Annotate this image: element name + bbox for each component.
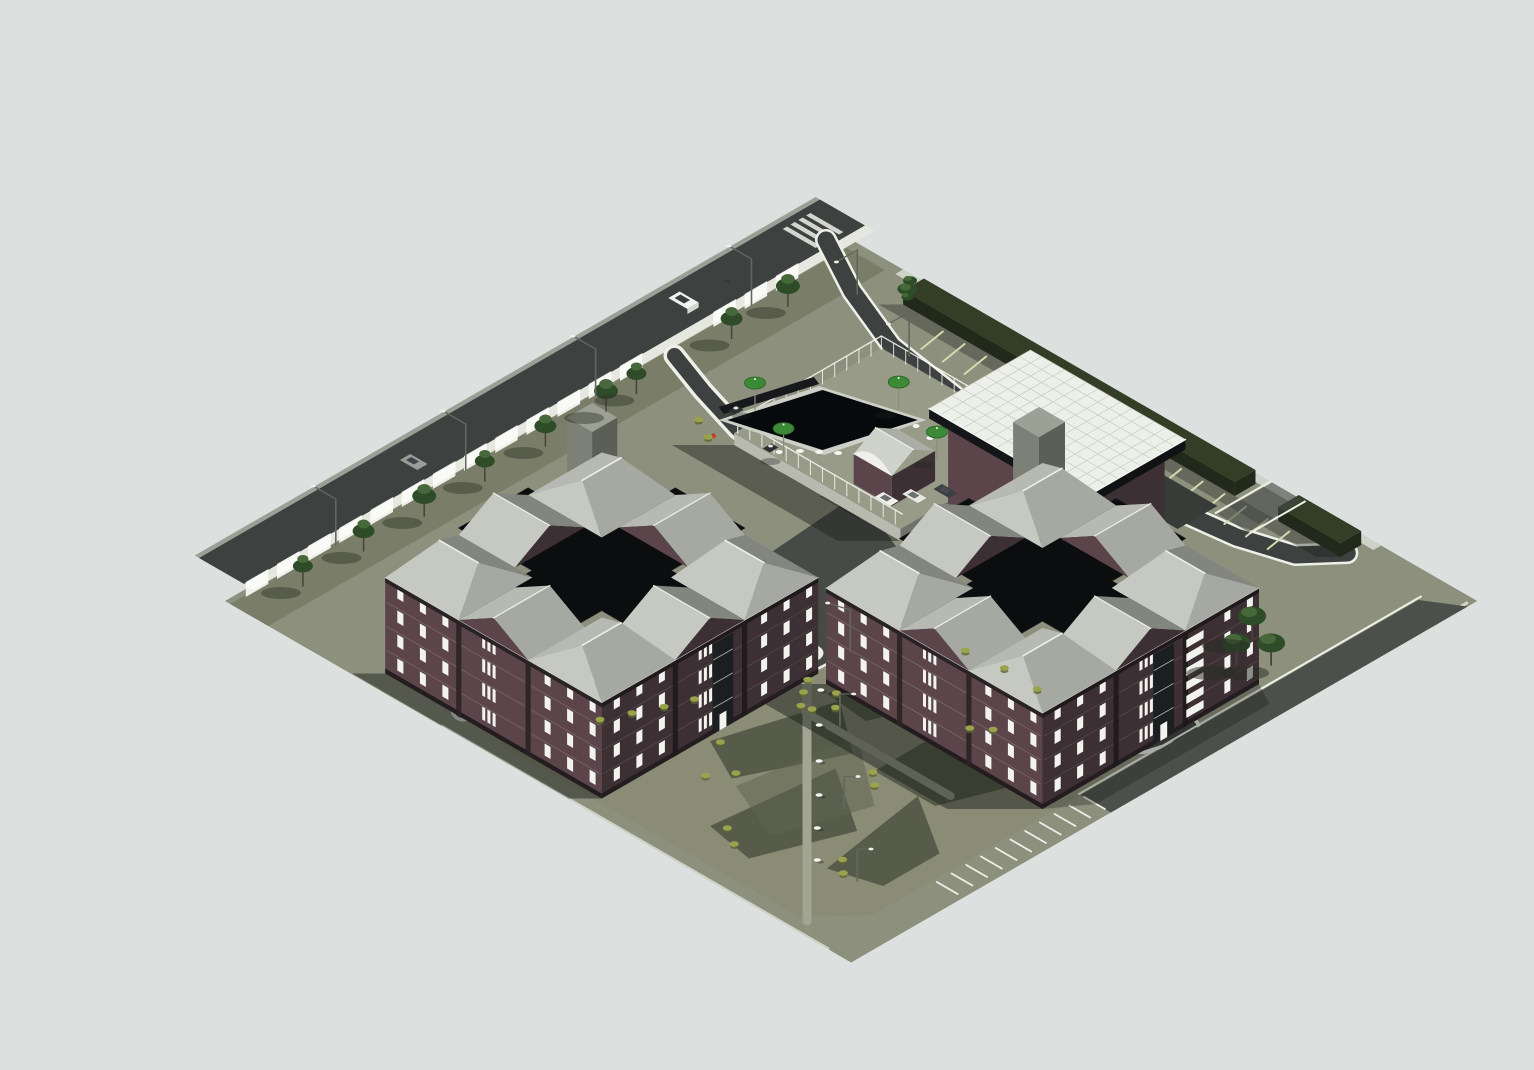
shrub	[831, 705, 840, 711]
window-slit	[493, 713, 496, 728]
tree-shadow	[382, 517, 422, 529]
shrub	[965, 725, 974, 731]
site-plan-canvas	[40, 16, 1534, 1054]
window-slit	[1145, 725, 1148, 740]
window-slit	[704, 715, 707, 730]
shrub	[796, 703, 805, 709]
window-slit	[1150, 674, 1153, 689]
window-slit	[923, 669, 926, 684]
shrub	[731, 770, 740, 776]
shrub	[690, 696, 699, 702]
lamp-head	[727, 245, 732, 248]
window-slit	[933, 723, 936, 738]
shrub	[1033, 686, 1042, 692]
shrub	[716, 739, 725, 745]
lamp-head	[571, 335, 576, 338]
window-slit	[923, 693, 926, 708]
umbrella-finial	[898, 377, 900, 379]
pool-grill-lid	[768, 445, 773, 448]
window-slit	[487, 686, 490, 701]
window-slit	[933, 699, 936, 714]
window-slit	[704, 691, 707, 706]
tree-shadow	[322, 552, 362, 564]
lamp-head	[856, 775, 861, 778]
tree-shadow	[1202, 639, 1250, 653]
hedge-shrub-light	[902, 293, 909, 297]
window-slit	[487, 662, 490, 677]
window-slit	[1140, 680, 1143, 695]
window-slit	[933, 675, 936, 690]
tree-shadow	[690, 340, 730, 352]
lamp-head	[834, 261, 839, 264]
pool-table	[913, 424, 920, 428]
window-slit	[482, 683, 485, 698]
architectural-site-render	[40, 16, 1534, 1054]
window-slit	[493, 689, 496, 704]
shrub	[838, 857, 847, 863]
window-slit	[1140, 728, 1143, 743]
window-slit	[1150, 698, 1153, 713]
tree-shadow	[1221, 666, 1269, 680]
shrub	[704, 434, 713, 440]
pool-lounger	[815, 450, 823, 454]
recess-notch	[456, 623, 461, 718]
tree-shadow	[503, 447, 543, 459]
tree-shadow	[443, 482, 483, 494]
tree-shadow	[564, 412, 604, 424]
tree-canopy-light	[631, 362, 642, 370]
bench	[816, 793, 823, 797]
tree-shadow	[746, 307, 786, 319]
recess-notch	[673, 663, 678, 758]
umbrella-finial	[754, 378, 756, 380]
recess-notch	[742, 623, 747, 718]
tree-canopy-light	[1260, 634, 1276, 644]
shrub	[660, 704, 669, 710]
window-slit	[482, 707, 485, 722]
lamp-head	[825, 602, 830, 605]
window-slit	[709, 664, 712, 679]
umbrella-shadow	[732, 413, 752, 420]
tree-shadow	[261, 587, 301, 599]
tree-canopy-light	[539, 415, 551, 424]
shrub	[808, 706, 817, 712]
lamp-head	[886, 323, 891, 326]
shrub	[628, 710, 637, 716]
tree-canopy-light	[725, 307, 737, 316]
window-slit	[493, 665, 496, 680]
shrub	[596, 717, 605, 723]
window-slit	[1150, 722, 1153, 737]
shrub	[961, 648, 970, 654]
hedge-shrub-light	[904, 276, 912, 281]
shrub	[989, 727, 998, 733]
umbrella-shadow	[914, 462, 934, 469]
shrub	[694, 417, 703, 423]
window-slit	[709, 688, 712, 703]
shrub	[701, 773, 710, 779]
tree-canopy-light	[357, 520, 369, 529]
shrub	[868, 769, 877, 775]
window-slit	[1145, 677, 1148, 692]
pool-grill-lid	[733, 407, 738, 410]
lamp-head	[441, 410, 446, 413]
shrub	[803, 677, 812, 683]
tree-canopy-light	[781, 274, 795, 284]
window-slit	[1140, 704, 1143, 719]
umbrella-finial	[783, 424, 785, 426]
recess-notch	[897, 633, 902, 728]
tree-shadow	[594, 395, 634, 407]
shrub	[870, 782, 879, 788]
bench	[814, 858, 821, 862]
recess-notch	[966, 673, 971, 768]
pool-lounger	[834, 451, 842, 455]
window-slit	[709, 712, 712, 727]
tree-canopy-light	[599, 379, 613, 389]
tree-canopy-light	[297, 555, 308, 563]
recess-notch	[1114, 673, 1119, 768]
shrub	[799, 689, 808, 695]
window-slit	[1145, 701, 1148, 716]
shrub	[839, 870, 848, 876]
umbrella-finial	[936, 427, 938, 429]
window-slit	[699, 670, 702, 685]
window-slit	[923, 717, 926, 732]
tree-canopy-light	[479, 450, 490, 458]
shrub	[1000, 665, 1009, 671]
window-slit	[699, 694, 702, 709]
tree-canopy-light	[417, 484, 431, 494]
bench	[816, 759, 823, 763]
pool-lounger	[796, 449, 804, 453]
manhole	[724, 280, 730, 283]
window-slit	[704, 667, 707, 682]
umbrella-shadow	[876, 412, 896, 419]
window-slit	[482, 659, 485, 674]
recess-notch	[526, 663, 531, 758]
shrub	[723, 825, 732, 831]
lamp-head	[851, 693, 856, 696]
pool-table	[776, 450, 783, 454]
window-slit	[487, 710, 490, 725]
window-slit	[928, 672, 931, 687]
bench	[816, 723, 823, 727]
window-slit	[928, 720, 931, 735]
window-slit	[928, 696, 931, 711]
shrub	[730, 841, 739, 847]
lamp-head	[311, 485, 316, 488]
bench	[817, 688, 824, 692]
window-slit	[699, 718, 702, 733]
bench	[814, 826, 821, 830]
lamp-head	[869, 848, 874, 851]
umbrella-shadow	[761, 458, 781, 465]
tree-canopy-light	[1241, 607, 1257, 617]
